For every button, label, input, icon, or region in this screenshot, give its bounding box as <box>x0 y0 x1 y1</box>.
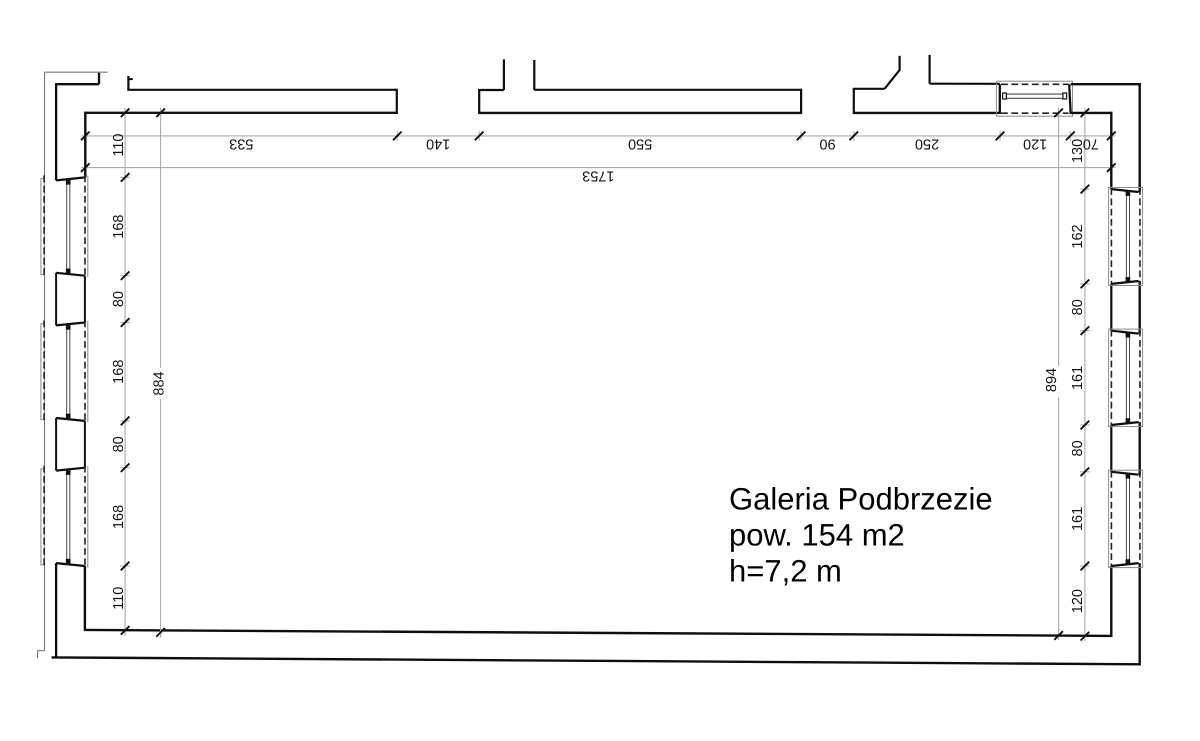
svg-text:pow. 154 m2: pow. 154 m2 <box>729 517 905 552</box>
svg-text:110: 110 <box>111 587 127 610</box>
svg-text:168: 168 <box>111 360 127 384</box>
svg-text:550: 550 <box>628 136 652 152</box>
svg-text:120: 120 <box>1023 136 1047 152</box>
svg-text:80: 80 <box>1070 440 1086 456</box>
svg-text:80: 80 <box>1070 299 1086 315</box>
svg-text:130: 130 <box>1070 139 1086 163</box>
svg-text:110: 110 <box>111 134 127 157</box>
svg-text:80: 80 <box>111 291 127 307</box>
svg-text:894: 894 <box>1044 368 1060 392</box>
svg-text:120: 120 <box>1070 589 1086 613</box>
svg-text:1753: 1753 <box>582 167 614 183</box>
svg-text:884: 884 <box>151 371 167 395</box>
svg-text:168: 168 <box>111 505 127 529</box>
svg-text:h=7,2 m: h=7,2 m <box>729 553 842 588</box>
svg-text:80: 80 <box>111 436 127 452</box>
svg-text:161: 161 <box>1070 507 1086 531</box>
svg-text:Galeria Podbrzezie: Galeria Podbrzezie <box>729 481 993 516</box>
svg-text:168: 168 <box>111 214 127 238</box>
svg-text:90: 90 <box>819 136 835 152</box>
svg-text:162: 162 <box>1070 224 1086 248</box>
svg-text:250: 250 <box>915 136 939 152</box>
svg-text:161: 161 <box>1070 366 1086 390</box>
svg-text:533: 533 <box>229 136 253 152</box>
svg-text:140: 140 <box>426 136 450 152</box>
